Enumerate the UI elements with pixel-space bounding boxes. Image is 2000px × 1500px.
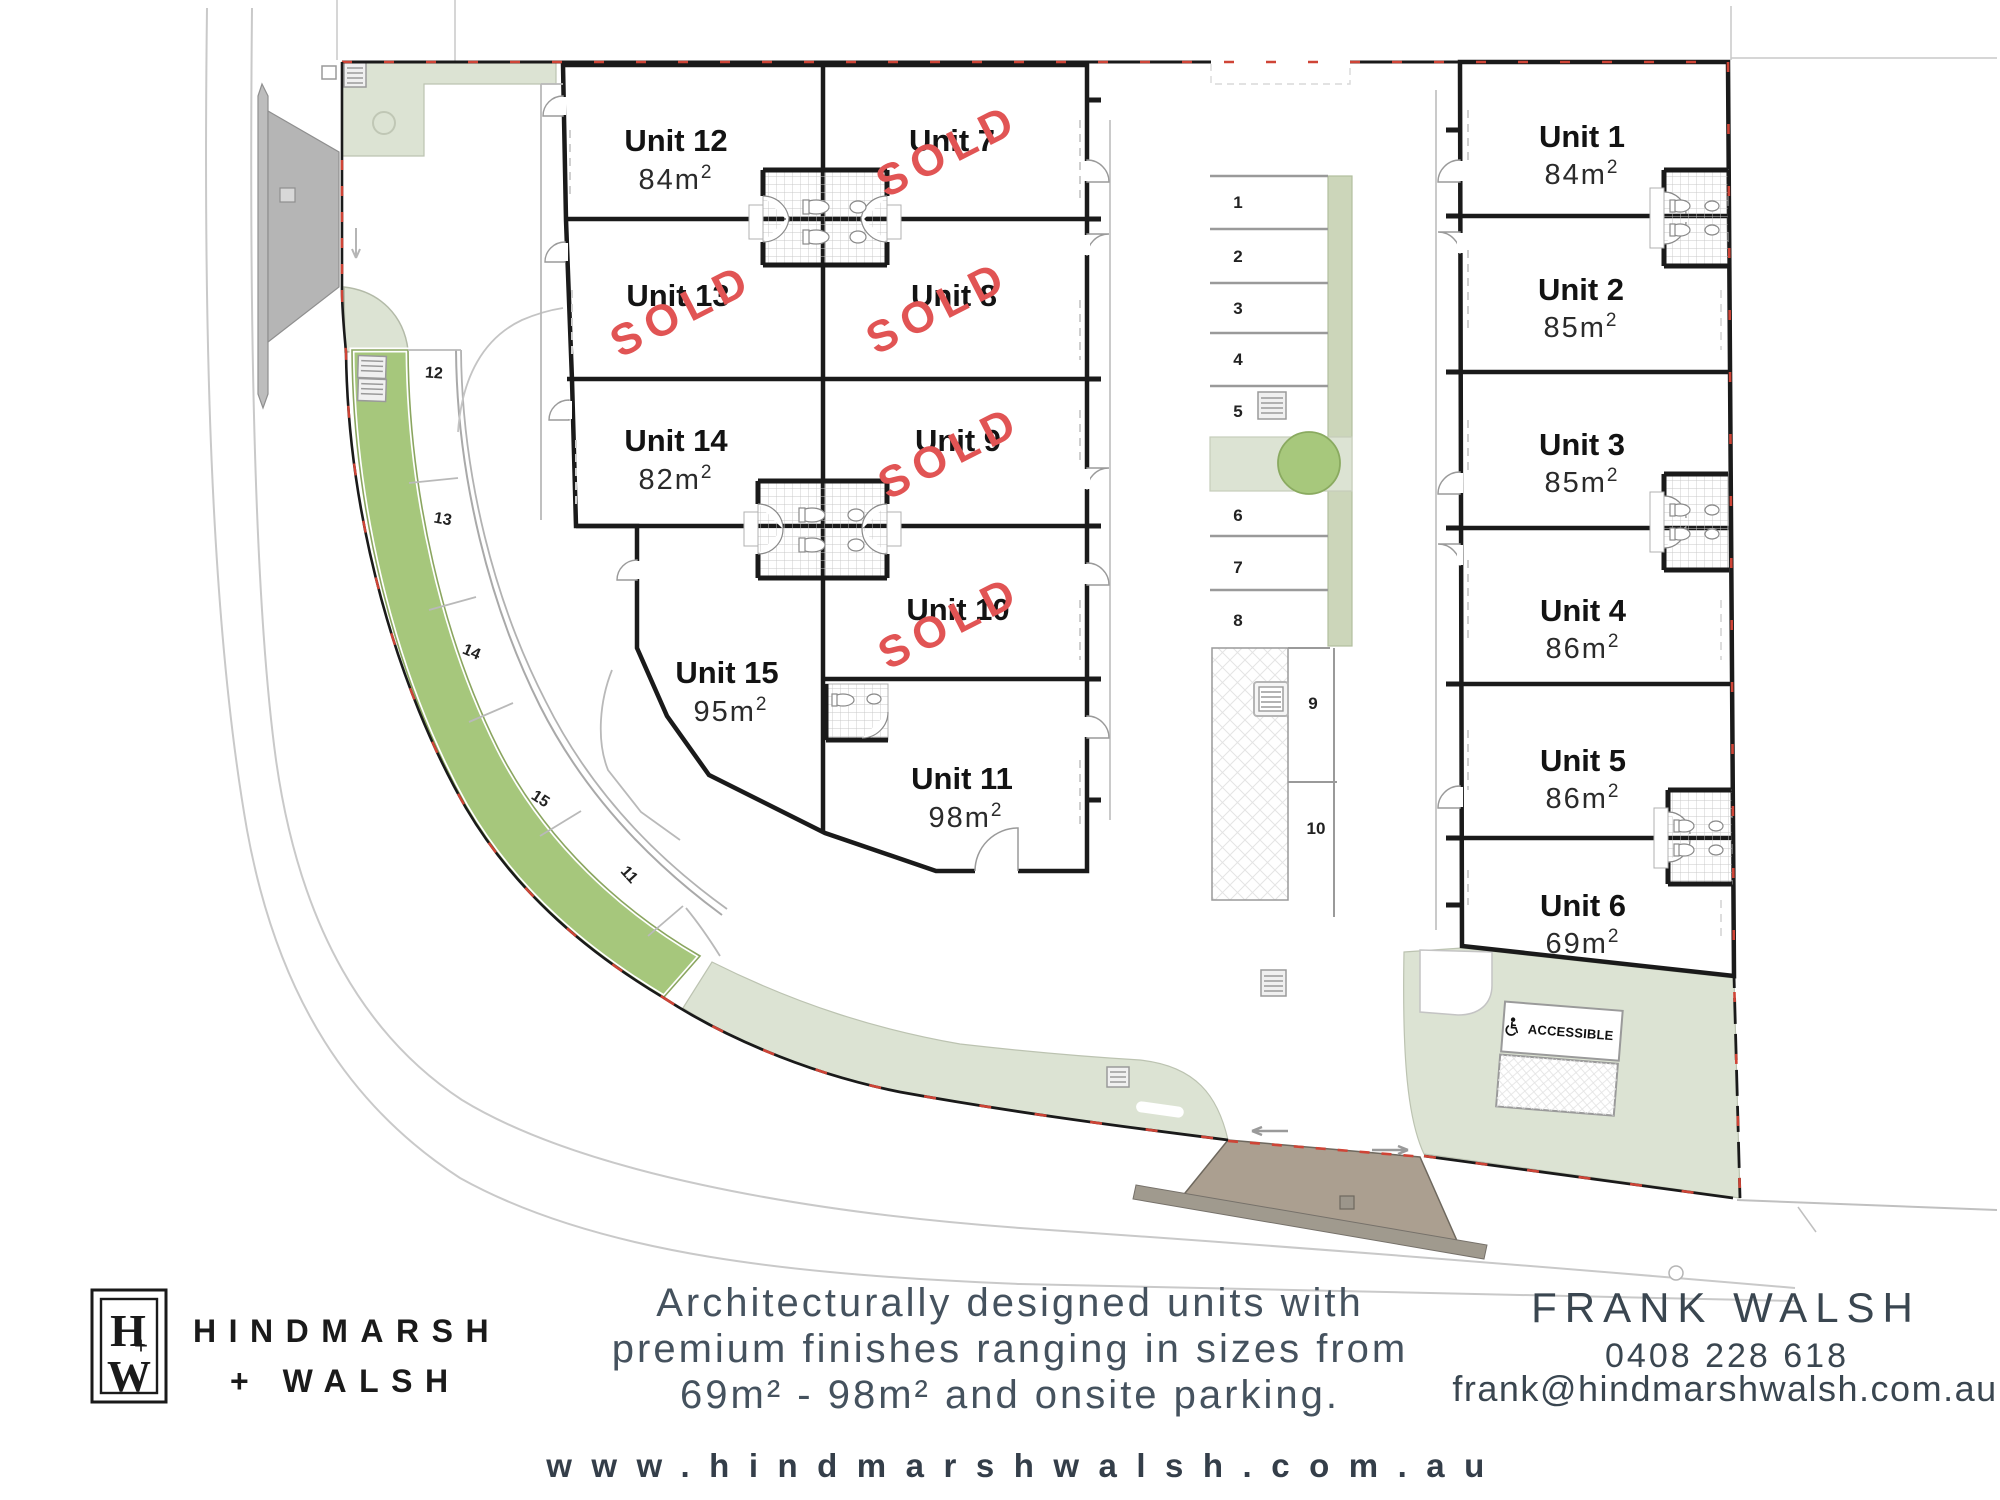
svg-text:4: 4	[1233, 350, 1243, 369]
svg-text:Architecturally designed units: Architecturally designed units with	[656, 1281, 1364, 1325]
svg-text:premium finishes ranging in si: premium finishes ranging in sizes from	[612, 1327, 1408, 1371]
svg-text:2: 2	[1233, 247, 1242, 266]
svg-text:W: W	[107, 1352, 151, 1401]
svg-text:Unit 15: Unit 15	[675, 655, 778, 690]
svg-text:13: 13	[433, 510, 454, 530]
svg-text:12: 12	[424, 364, 443, 382]
svg-text:8: 8	[1233, 611, 1242, 630]
svg-text:11: 11	[617, 863, 641, 887]
svg-text:+ WALSH: + WALSH	[230, 1363, 461, 1399]
svg-text:5: 5	[1233, 402, 1242, 421]
svg-text:Unit 6: Unit 6	[1540, 888, 1626, 923]
svg-text:6: 6	[1233, 506, 1242, 525]
svg-text:HINDMARSH: HINDMARSH	[193, 1313, 501, 1349]
svg-text:9: 9	[1308, 694, 1317, 713]
svg-text:1: 1	[1233, 193, 1242, 212]
svg-text:Unit 12: Unit 12	[624, 123, 727, 158]
svg-text:3: 3	[1233, 299, 1242, 318]
svg-text:69m² - 98m² and onsite parking: 69m² - 98m² and onsite parking.	[680, 1373, 1340, 1417]
svg-text:Unit 5: Unit 5	[1540, 743, 1626, 778]
svg-text:10: 10	[1307, 819, 1326, 838]
svg-text:Unit 14: Unit 14	[624, 423, 728, 458]
svg-text:Unit 11: Unit 11	[911, 761, 1013, 796]
svg-text:Unit 2: Unit 2	[1538, 272, 1624, 307]
svg-text:frank@hindmarshwalsh.com.au: frank@hindmarshwalsh.com.au	[1452, 1368, 1997, 1409]
svg-text:Unit 1: Unit 1	[1539, 119, 1625, 154]
svg-text:www.hindmarshwalsh.com.au: www.hindmarshwalsh.com.au	[545, 1447, 1504, 1484]
svg-text:Unit 4: Unit 4	[1540, 593, 1627, 628]
svg-text:FRANK WALSH: FRANK WALSH	[1531, 1284, 1921, 1331]
svg-text:Unit 3: Unit 3	[1539, 427, 1625, 462]
svg-text:7: 7	[1233, 558, 1242, 577]
